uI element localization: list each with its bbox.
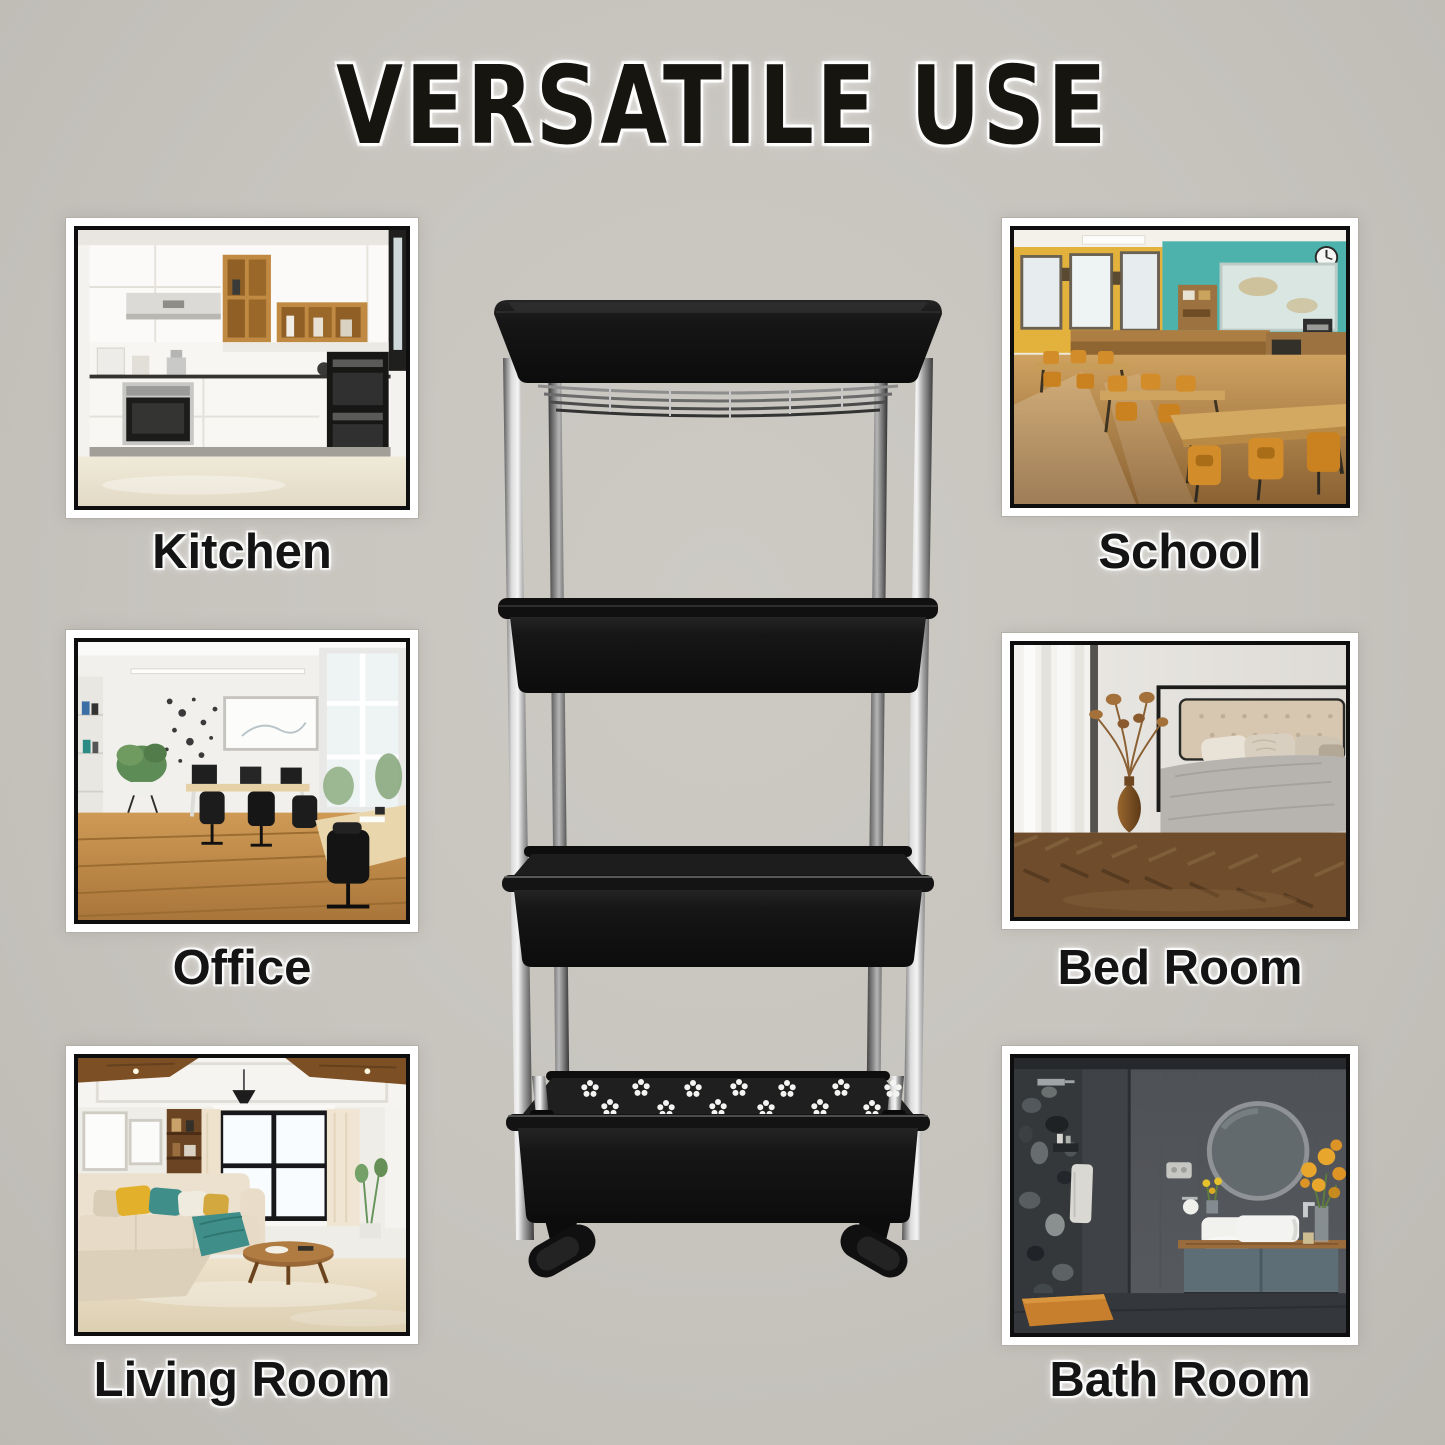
- bathroom-photo: [1010, 1054, 1350, 1337]
- cart-tier-1-basket: [494, 300, 942, 383]
- cart-right-wheel: [834, 1216, 913, 1284]
- living-room-label: Living Room: [66, 1352, 418, 1408]
- rolling-cart-product-image: [490, 288, 946, 1288]
- bedroom-frame: [1002, 633, 1358, 929]
- bathroom-frame: [1002, 1046, 1358, 1345]
- kitchen-photo: [74, 226, 410, 510]
- office-label: Office: [66, 940, 418, 996]
- bathroom-label: Bath Room: [1002, 1352, 1358, 1408]
- living-room-photo: [74, 1054, 410, 1336]
- office-photo: [74, 638, 410, 924]
- cart-back-left-pole: [548, 348, 570, 1150]
- bedroom-photo: [1010, 641, 1350, 921]
- kitchen-frame: [66, 218, 418, 518]
- living-room-frame: [66, 1046, 418, 1344]
- school-photo: [1010, 226, 1350, 508]
- cart-back-right-pole: [866, 348, 888, 1150]
- office-frame: [66, 630, 418, 932]
- cart-tier-2-basket: [498, 598, 938, 693]
- cart-tier-4-basket: [506, 1071, 930, 1223]
- cart-wire-shelf: [538, 384, 898, 418]
- page-title: VERSATILE USE: [145, 44, 1301, 169]
- kitchen-label: Kitchen: [66, 524, 418, 580]
- cart-left-wheel: [522, 1216, 601, 1284]
- school-label: School: [1002, 524, 1358, 580]
- school-frame: [1002, 218, 1358, 516]
- page-background: VERSATILE USE: [0, 0, 1445, 1445]
- bedroom-label: Bed Room: [1002, 940, 1358, 996]
- cart-tier-3-basket: [502, 846, 934, 967]
